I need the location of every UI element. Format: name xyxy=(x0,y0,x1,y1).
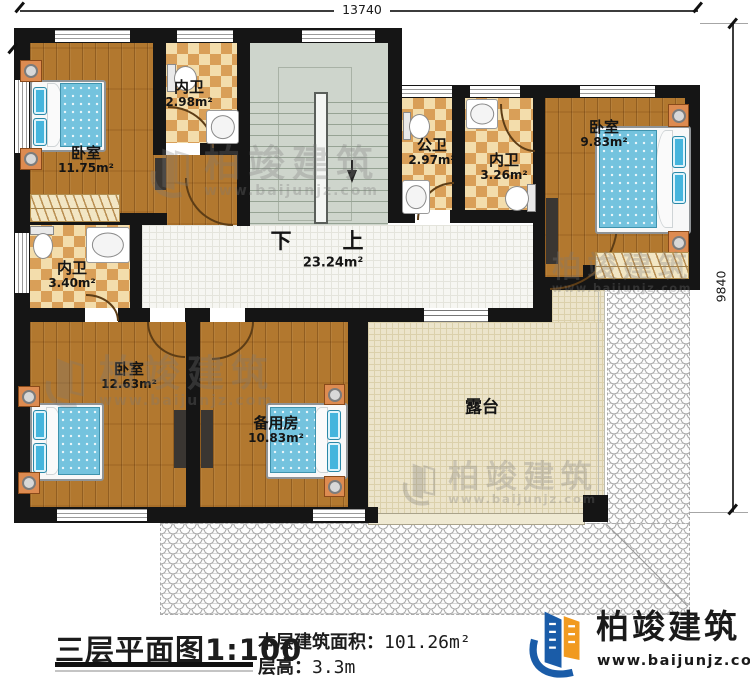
room-label-bath-326: 内卫 3.26m² xyxy=(480,152,527,182)
bed-pillow xyxy=(672,172,686,204)
bed-pillow xyxy=(672,136,686,168)
tv-cabinet xyxy=(201,410,213,468)
wall-terrace-1 xyxy=(376,308,424,322)
floor-height-row: 层高：3.3m xyxy=(258,653,355,679)
floor-area-row: 本层建筑面积：101.26m² xyxy=(258,628,471,654)
nightstand xyxy=(668,104,689,127)
window xyxy=(302,30,375,42)
wall-hall-bottom-2 xyxy=(118,308,150,322)
dimension-tick xyxy=(727,503,737,515)
dimension-label-right: 9840 xyxy=(714,262,729,312)
tv-cabinet xyxy=(546,198,558,264)
dimension-extension xyxy=(700,23,748,24)
wall-hall-bottom-4 xyxy=(245,308,376,322)
window xyxy=(580,86,655,97)
floor-height-value: 3.3m xyxy=(312,657,355,678)
stair-direction-arrow xyxy=(347,170,357,183)
bed-pillow xyxy=(327,442,341,472)
room-label-bedroom-tr: 卧室 9.83m² xyxy=(580,119,627,149)
room-label-bath-298: 内卫 2.98m² xyxy=(165,79,212,109)
stair-center-rail xyxy=(314,92,328,224)
floor-plan-canvas: 卧室 11.75m² 内卫 2.98m² 公卫 2.97m² 内卫 3.26m²… xyxy=(0,0,750,681)
bed-pillow xyxy=(33,87,47,115)
title-underline-thin xyxy=(55,670,253,672)
wardrobe-top-left xyxy=(30,194,120,222)
floor-height-label: 层高： xyxy=(258,657,312,678)
window xyxy=(15,233,29,293)
room-label-bath-340: 内卫 3.40m² xyxy=(48,260,95,290)
brand-logo-icon xyxy=(522,606,592,678)
brand-website: www.baijunjz.com xyxy=(597,654,750,669)
wall-stair-right xyxy=(388,28,402,223)
bed-mattress xyxy=(58,407,100,475)
room-label-bedroom-bl: 卧室 12.63m² xyxy=(101,361,157,391)
sink xyxy=(402,180,430,214)
nightstand xyxy=(20,148,42,170)
room-label-terrace: 露台 xyxy=(465,399,499,418)
dimension-extension xyxy=(690,512,748,513)
sink xyxy=(206,110,239,144)
window xyxy=(177,30,233,42)
wall-connector xyxy=(533,290,552,310)
toilet xyxy=(33,233,53,259)
wall-hall-bottom-1 xyxy=(14,308,85,322)
wall-spare-right xyxy=(348,322,368,507)
nightstand xyxy=(18,386,40,407)
terrace-railing xyxy=(368,513,585,525)
sink xyxy=(466,99,498,129)
roof-right xyxy=(607,288,690,525)
terrace-pillar xyxy=(583,495,608,522)
terrace-side-railing xyxy=(598,292,605,513)
window xyxy=(57,509,147,521)
window xyxy=(402,86,452,97)
nightstand xyxy=(18,472,40,494)
window xyxy=(15,80,29,153)
wall-hall-bottom-3 xyxy=(185,308,210,322)
hall-area-label: 23.24m² xyxy=(303,256,363,271)
wall-bath298-left xyxy=(153,28,166,155)
sink xyxy=(86,227,130,263)
floor-area-label: 本层建筑面积： xyxy=(258,632,384,653)
nightstand xyxy=(20,60,42,82)
wall-bedroom-divider xyxy=(186,322,200,507)
window xyxy=(313,509,365,521)
floor-area-value: 101.26m² xyxy=(384,632,471,653)
terrace-sliding-door xyxy=(424,310,488,322)
window xyxy=(55,30,130,42)
room-label-bath-public: 公卫 2.97m² xyxy=(408,137,455,167)
room-label-bedroom-tl: 卧室 11.75m² xyxy=(58,145,114,175)
stair-down-label: 下 xyxy=(271,225,292,255)
room-label-spare-room: 备用房 10.83m² xyxy=(248,415,304,445)
floor-terrace xyxy=(368,322,605,515)
nightstand xyxy=(668,231,689,254)
nightstand xyxy=(324,384,345,405)
window xyxy=(470,86,520,97)
tv-cabinet xyxy=(155,158,166,190)
bed-sheet xyxy=(655,130,673,228)
roof-bottom xyxy=(160,523,690,615)
brand-name: 柏竣建筑 xyxy=(596,610,740,643)
nightstand xyxy=(324,476,345,497)
stair-up-label: 上 xyxy=(343,225,364,255)
bed-pillow xyxy=(327,410,341,440)
wardrobe-top-right xyxy=(595,252,689,279)
bed-pillow xyxy=(33,443,47,473)
wall-terrace-2 xyxy=(488,308,552,322)
dimension-line-right xyxy=(732,24,734,513)
toilet xyxy=(505,186,529,211)
bed-mattress xyxy=(60,83,102,147)
dimension-label-top: 13740 xyxy=(334,2,390,18)
tv-cabinet xyxy=(174,410,186,468)
bed-pillow xyxy=(33,118,47,146)
bed-pillow xyxy=(33,410,47,440)
title-underline xyxy=(55,662,253,667)
